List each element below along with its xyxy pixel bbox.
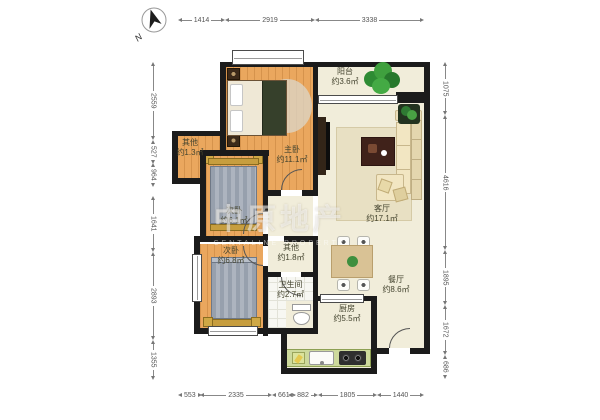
wall-other-a-bottom [172,178,206,184]
room-area: 约1.3㎡ [176,148,203,158]
room-name: 次卧 [226,206,242,216]
faucet-icon [320,361,324,365]
nightstand-top [227,68,240,80]
master-bay-window [232,50,304,65]
wall-kitchen-bottom [281,368,377,374]
room-area: 约11.1㎡ [277,155,308,165]
room-label-dining-room: 餐厅 约8.6㎡ [374,275,418,295]
room-area: 约3.6㎡ [331,77,358,87]
dim-bottom-2: 2335 [200,390,272,400]
room-label-kitchen: 厨房 约5.5㎡ [326,304,368,324]
room-area: 约1.8㎡ [277,253,304,263]
wall-bedroom-a-left [200,150,206,242]
room-label-master-bedroom: 主卧 约11.1㎡ [266,145,318,165]
master-bed [227,80,287,136]
room-label-other-b: 其他 约1.8㎡ [270,243,312,263]
toilet-tank [292,304,311,311]
tv-screen [326,122,330,170]
dim-bottom-5: 1805 [318,390,377,400]
stove [339,351,366,365]
floor-corridor [268,196,313,236]
floor-plan: N [0,0,600,420]
compass-n-label: N [133,31,145,43]
room-name: 其他 [182,138,198,148]
room-name: 次卧 [223,246,239,256]
room-label-other-a: 其他 约1.3㎡ [171,138,209,158]
dim-bottom-3: 661 [272,390,288,400]
corner-plant [398,104,420,124]
dim-left-4: 1641 [148,196,158,252]
bed-blanket [262,81,286,135]
plant-leaves-icon [372,78,390,94]
table-decor [381,150,387,156]
dim-bottom-6: 1440 [377,390,424,400]
dim-right-2: 4616 [440,115,450,250]
wall-kitchen-right [371,296,377,374]
room-area: 约5.5㎡ [333,314,360,324]
dining-chair [337,279,350,291]
balcony-plant [364,62,402,96]
wall-bedrooms-right-mid [263,234,268,246]
pillow [230,84,243,106]
table-plant-icon [347,256,358,267]
master-door-opening [281,190,302,196]
bedroom-b-side-window [192,254,202,302]
dim-left-3: 964 [148,163,158,196]
bed-second-b [211,262,257,319]
coffee-table [361,137,395,166]
kitchen-sink [309,351,334,365]
entry-door-opening [389,348,410,354]
wall-master-left [220,62,226,156]
wall-bath-bottom [266,328,318,334]
room-label-balcony: 阳台 约3.6㎡ [324,67,366,87]
dim-left-5: 2893 [148,252,158,340]
dim-top-1: 1414 [178,15,225,25]
room-name: 主卧 [284,145,300,155]
dim-right-4: 1672 [440,305,450,355]
wall-master-right [313,62,318,196]
dim-right-5: 686 [440,355,450,378]
dining-chair [357,279,370,291]
wall-right-outer [424,62,430,353]
sofa-back [411,120,422,200]
room-name: 其他 [283,243,299,253]
room-label-bathroom: 卫生间 约2.7㎡ [268,280,313,300]
room-area: 约6.8㎡ [217,256,244,266]
wall-other-a-top [172,131,226,136]
room-label-second-bedroom-b: 次卧 约6.8㎡ [206,246,256,266]
room-label-living-room: 客厅 约17.1㎡ [358,204,406,224]
dim-bottom-1: 553 [178,390,200,400]
kitchen-sliding-door [320,294,364,303]
room-label-second-bedroom-a: 次卧 约6.1㎡ [209,206,259,226]
room-area: 约6.1㎡ [220,216,247,226]
dim-top-3: 3338 [315,15,424,25]
wall-kitchen-left [281,330,287,374]
room-area: 约17.1㎡ [366,214,398,224]
dim-left-1: 2559 [148,62,158,140]
burner-icon [342,354,350,362]
dim-right-1: 1075 [440,62,450,115]
wall-bath-right [313,236,318,334]
table-decor [368,144,377,153]
knife-icon [294,354,303,363]
compass-north-icon: N [132,3,174,45]
dining-table [331,245,373,278]
dim-top-2: 2919 [225,15,315,25]
tv-cabinet [318,117,326,175]
wall-bedroom-a-top [200,150,269,156]
room-name: 客厅 [374,204,390,214]
room-area: 约2.7㎡ [277,290,304,300]
dim-right-3: 1895 [440,250,450,305]
room-name: 阳台 [337,67,353,77]
kitchen-counter [286,349,371,367]
balcony-sliding-window [318,95,398,104]
room-name: 卫生间 [279,280,303,290]
room-area: 约8.6㎡ [382,285,409,295]
room-name: 厨房 [339,304,355,314]
plant-leaves-icon [407,110,417,120]
room-name: 餐厅 [388,275,404,285]
pillow [230,110,243,132]
dim-left-2: 527 [148,140,158,163]
dim-left-6: 1355 [148,340,158,380]
burner-icon [354,354,362,362]
bed-headboard [208,158,259,165]
cutting-board [292,352,305,364]
dim-bottom-4: 882 [288,390,318,400]
bedroom-b-bottom-window [208,326,258,336]
